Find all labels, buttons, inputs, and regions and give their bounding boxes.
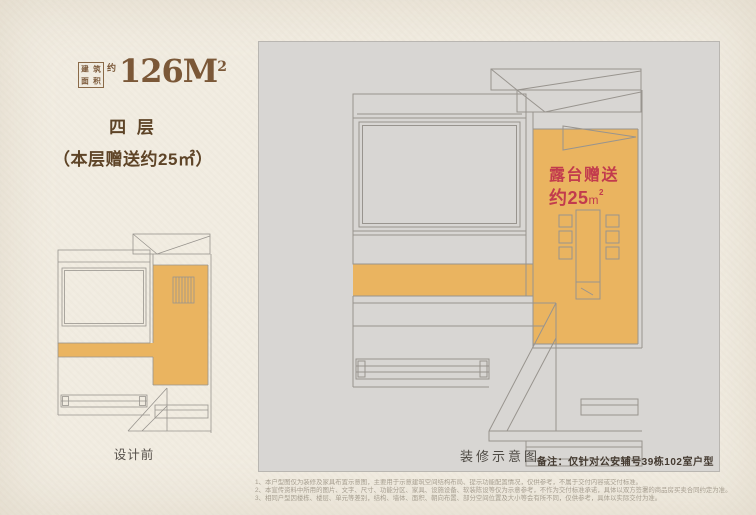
panel-note: 备注：仅针对公安辅号39栋102室户型 [537,453,714,468]
terrace-gift-line2: 约25m2 [549,188,644,209]
footnotes: 1、本户型图仅为装修及家具布置示意图，主要用于示意建筑空间结构布局、提示功能配置… [255,479,751,502]
small-plan-terrace-area [58,265,208,385]
terrace-gift-label: 露台赠送 约25m2 [549,167,644,209]
brochure-page: 建 筑 面 积 约 126M2 四 层 （本层赠送约25㎡） [0,0,756,515]
footnote-line: 1、本户型图仅为装修及家具布置示意图，主要用于示意建筑空间结构布局、提示功能配置… [255,479,751,487]
terrace-gift-line1: 露台赠送 [549,167,644,185]
bonus-note: （本层赠送约25㎡） [10,145,256,170]
area-value-number: 126M [119,52,217,90]
area-value: 126M2 [109,52,226,90]
large-plan-drawing [259,42,721,473]
terrace-gift-unit-sup: 2 [599,188,604,197]
footnote-line: 3、相同户型因楼栋、楼层、单元等差别，结构、墙体、面积、朝向布置、部分空间位置及… [255,495,751,503]
area-box-char: 积 [92,76,102,86]
large-plan-terrace-area [353,129,638,344]
area-box-char: 面 [80,76,90,86]
area-box-char: 建 [80,64,90,74]
area-value-sup: 2 [217,59,226,75]
floor-label: 四 层 [23,113,243,138]
small-plan-caption: 设计前 [45,444,223,463]
footnote-line: 2、本宣传资料中所用的图片、文字、尺寸、功能分区、家具、设施设备、软装陈设等仅为… [255,487,751,495]
area-label-box: 建 筑 面 积 [78,62,104,88]
decorated-plan-panel: 露台赠送 约25m2 装修示意图 备注：仅针对公安辅号39栋102室户型 [258,41,720,472]
small-plan-drawing [45,228,223,440]
area-box-char: 筑 [92,64,102,74]
terrace-gift-value: 约25 [549,188,589,208]
terrace-gift-unit: m [589,193,600,207]
